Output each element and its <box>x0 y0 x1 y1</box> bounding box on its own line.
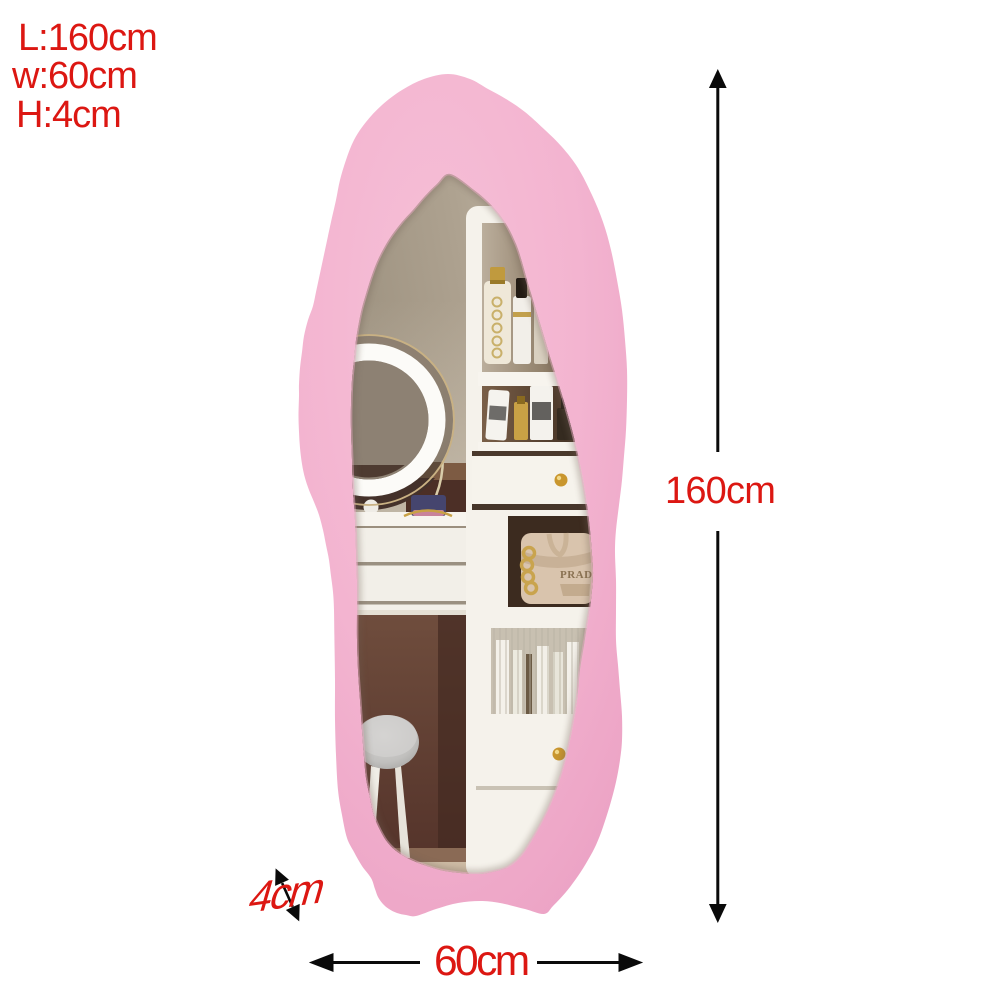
svg-text:60cm: 60cm <box>434 938 528 985</box>
svg-text:w:60cm: w:60cm <box>11 55 137 97</box>
svg-text:H:4cm: H:4cm <box>16 94 121 136</box>
svg-text:160cm: 160cm <box>665 470 775 512</box>
svg-text:4cm: 4cm <box>243 864 330 923</box>
svg-text:L:160cm: L:160cm <box>18 17 157 59</box>
